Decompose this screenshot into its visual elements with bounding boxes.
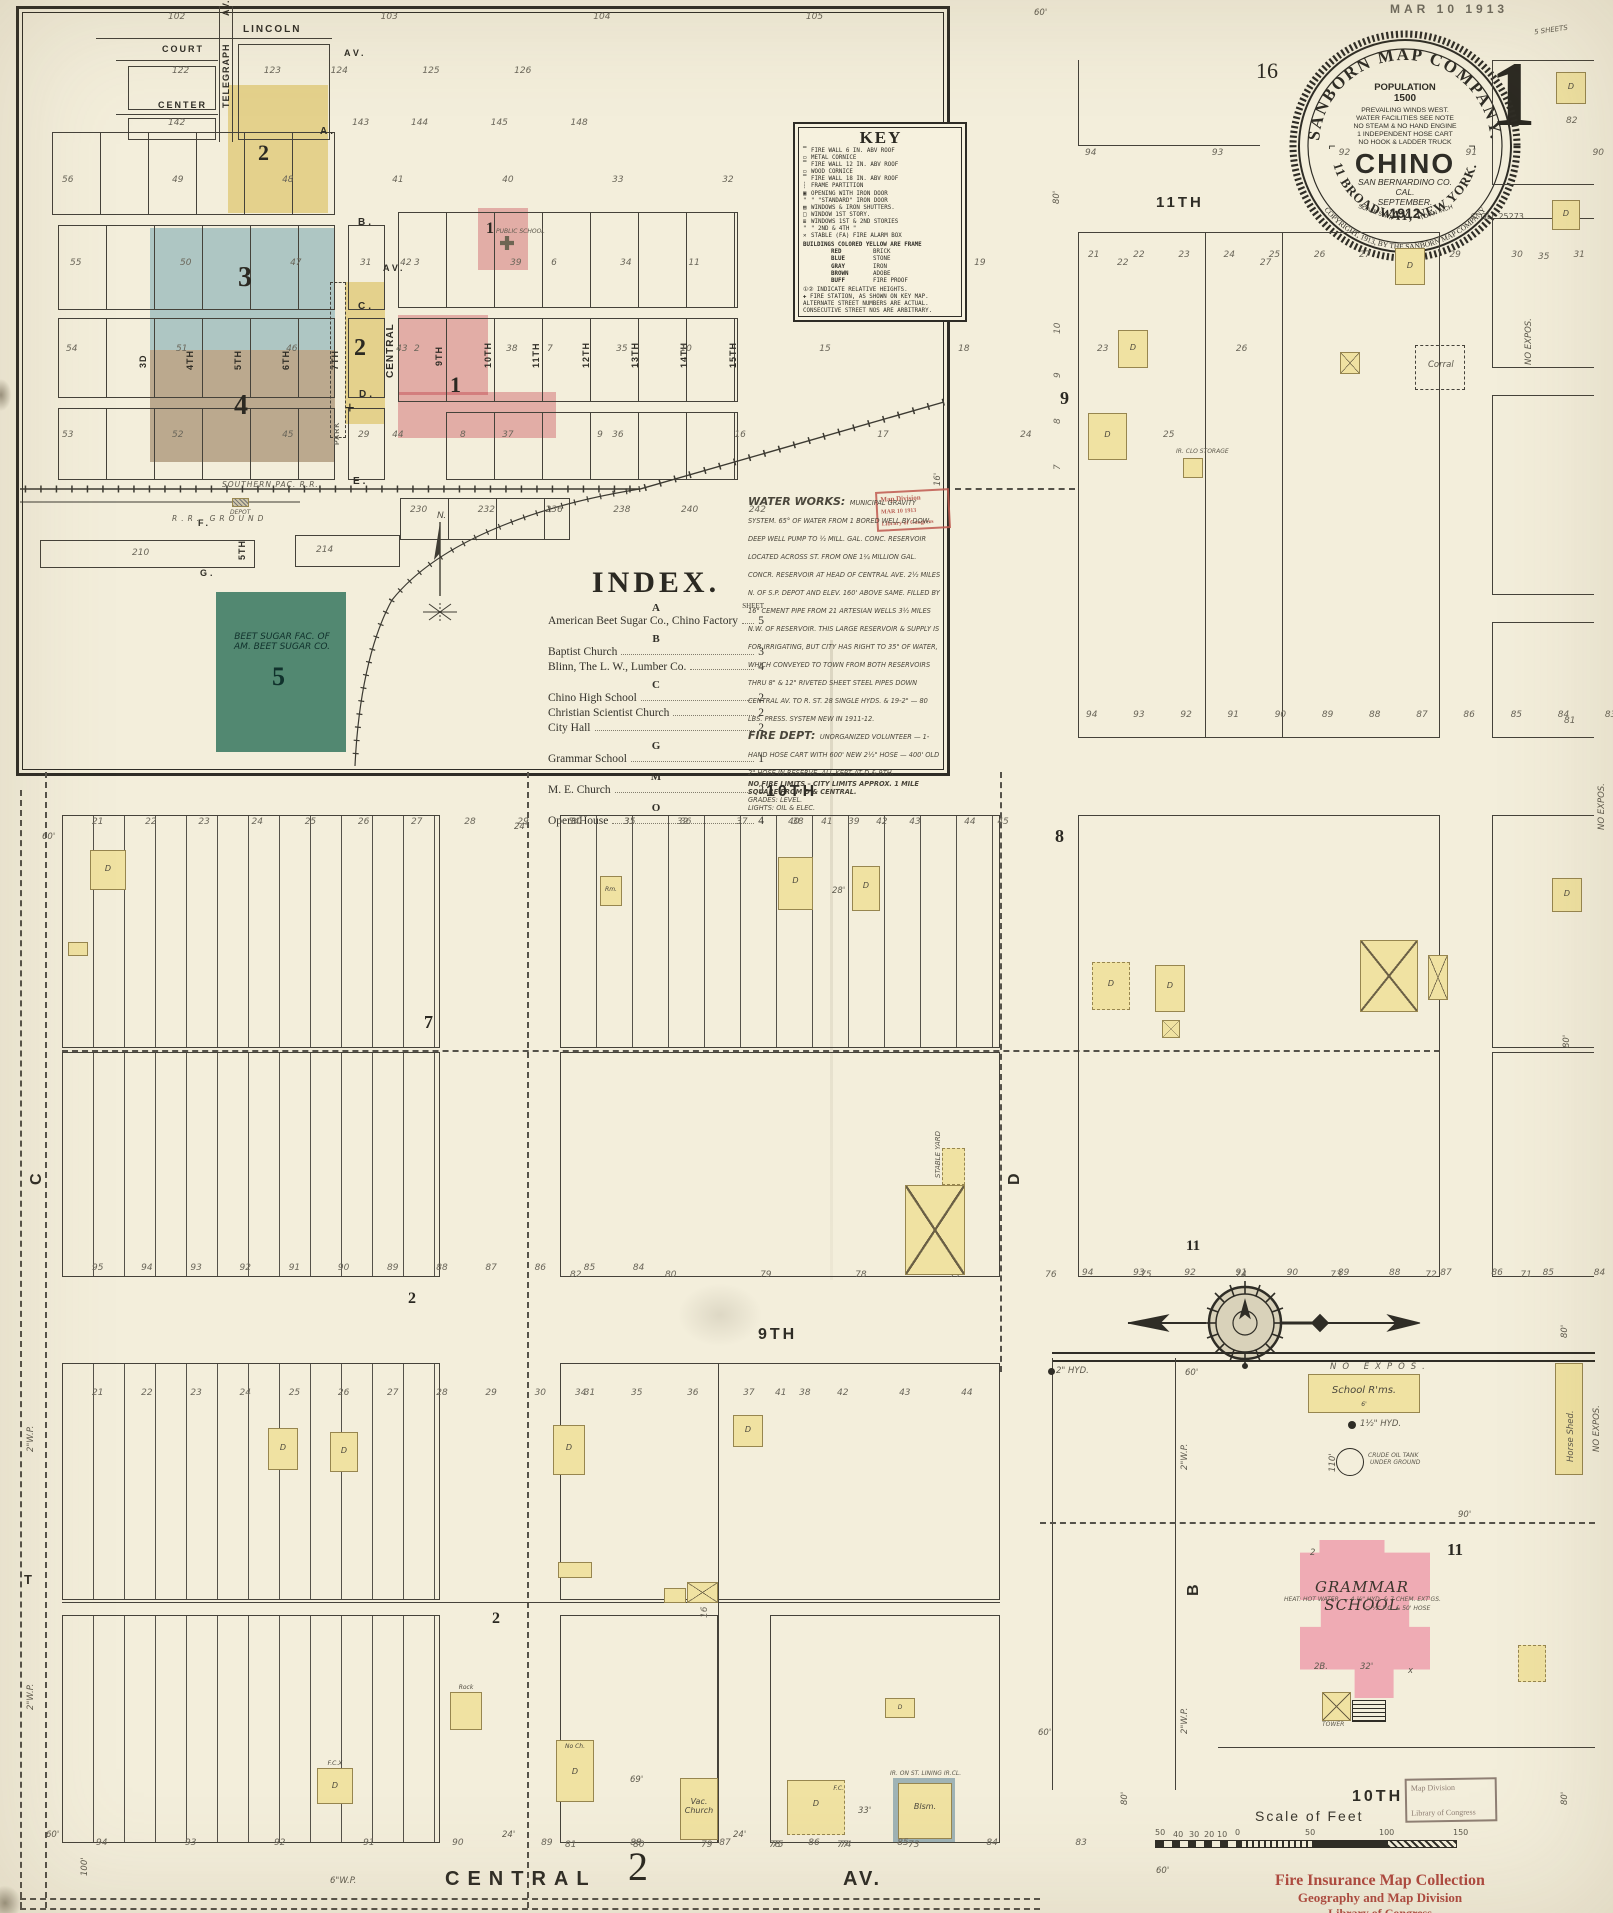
index-letter: G bbox=[548, 740, 764, 752]
lot-number: 81 bbox=[1564, 716, 1575, 726]
key-color-note: BUILDINGS COLORED YELLOW ARE FRAME bbox=[803, 242, 959, 249]
ft16-label: 16' bbox=[933, 473, 943, 486]
ft60-label: 60' bbox=[1185, 1368, 1198, 1378]
grammar-school-hose: ○ ½" P.O. & 50' HOSE bbox=[1365, 1605, 1430, 1612]
key-footnote: ALTERNATE STREET NUMBERS ARE ACTUAL. bbox=[803, 301, 959, 308]
school-rooms-building: School R'ms. 6' bbox=[1308, 1374, 1420, 1413]
lot-row: 122 123 124 125 126 bbox=[172, 66, 531, 76]
stamp-line: Map Division bbox=[1411, 1782, 1491, 1792]
unopened-street bbox=[955, 488, 1075, 490]
key-item: ▔FIRE WALL 12 IN. ABV ROOF bbox=[803, 162, 959, 169]
dwelling: D bbox=[733, 1415, 763, 1447]
index-entry: Baptist Church3 bbox=[548, 645, 764, 660]
lot-number: 8 bbox=[1053, 418, 1063, 424]
outbuilding bbox=[1428, 955, 1448, 1000]
block-divider bbox=[718, 1363, 719, 1843]
key-footnote: CONSECUTIVE STREET NOS ARE ARBITRARY. bbox=[803, 308, 959, 315]
key-item: "" "STANDARD" IRON DOOR bbox=[803, 198, 959, 205]
key-item: ┆FRAME PARTITION bbox=[803, 183, 959, 190]
index-entry: American Beet Sugar Co., Chino Factory5 bbox=[548, 614, 764, 629]
x-mark: x bbox=[1408, 1666, 1413, 1676]
c-street-line bbox=[45, 772, 47, 1908]
lot-row: 56 49 48 41 40 33 32 bbox=[62, 175, 734, 185]
basement-building: Blsm. bbox=[893, 1778, 955, 1842]
crude-oil-tank-circle bbox=[1336, 1448, 1364, 1476]
city-block bbox=[1078, 815, 1440, 1277]
sheet1-number: 1 bbox=[450, 372, 461, 398]
lights-note: LIGHTS: OIL & ELEC. bbox=[748, 804, 944, 812]
ft32-label: 32' bbox=[1360, 1662, 1373, 1672]
ir-lining-label: IR. ON ST. LINING IR.CL. bbox=[890, 1770, 961, 1777]
ft80-label: 80' bbox=[1562, 1035, 1572, 1048]
stable-yard-label: STABLE YARD bbox=[934, 1131, 942, 1178]
no-expos-label: NO EXPOS. bbox=[1592, 1405, 1602, 1452]
key-color-row: BUFFFIRE PROOF bbox=[803, 278, 959, 285]
street-e: E. bbox=[353, 476, 368, 487]
street-t: T bbox=[24, 1572, 35, 1587]
street-g: G. bbox=[200, 568, 216, 578]
scale-of-feet: Scale of Feet 50 40 30 20 10 0 50 100 15… bbox=[1155, 1808, 1465, 1854]
ft24-label: 24' bbox=[502, 1830, 515, 1840]
street-b: B. bbox=[358, 217, 374, 228]
lot-row: 94 93 92 91 90 89 88 87 86 85 84 83 bbox=[1082, 1268, 1613, 1278]
outbuilding bbox=[687, 1582, 718, 1603]
lot-row: 29 bbox=[358, 430, 369, 440]
lot-row: 75 74 73 bbox=[772, 1840, 920, 1850]
ft69-label: 69' bbox=[630, 1775, 643, 1785]
north-label: N. bbox=[437, 510, 446, 520]
lot-row: 142 143 144 145 148 bbox=[168, 118, 588, 128]
ft80-label: 80' bbox=[1560, 1325, 1570, 1338]
index-title: INDEX. bbox=[548, 566, 764, 600]
ft60-label: 60' bbox=[1034, 8, 1047, 18]
outbuilding bbox=[664, 1588, 686, 1603]
lot-number: 10 bbox=[1053, 323, 1063, 334]
key-legend-box: KEY ▔FIRE WALL 6 IN. ABV ROOF ▭METAL COR… bbox=[793, 122, 967, 322]
dwelling: D bbox=[1552, 878, 1582, 912]
key-item: "" 2ND & 4TH " bbox=[803, 226, 959, 233]
page-ref-16: 16 bbox=[1256, 58, 1278, 84]
scale-bar-segment bbox=[1387, 1840, 1457, 1848]
key-item: □WINDOW 1ST STORY. bbox=[803, 212, 959, 219]
hyd15-label: 1½" HYD. bbox=[1360, 1419, 1401, 1429]
seal-population-label: POPULATION bbox=[1374, 82, 1436, 93]
dwelling: D bbox=[330, 1432, 358, 1472]
sanborn-seal: SANBORN MAP COMPANY. 11 BROADWAY, NEW YO… bbox=[1287, 28, 1523, 264]
central-av-centerline bbox=[20, 1898, 1040, 1900]
lot-number: 9 bbox=[1053, 372, 1063, 378]
index-entry: Blinn, The L. W., Lumber Co.4 bbox=[548, 660, 764, 675]
dwelling: D bbox=[852, 866, 880, 911]
index-letter: O bbox=[548, 802, 764, 814]
index-letter: B bbox=[548, 633, 764, 645]
dwelling: D bbox=[268, 1428, 298, 1470]
lot-number: 210 bbox=[132, 548, 149, 558]
city-block bbox=[62, 1615, 440, 1843]
outbuilding bbox=[1518, 1645, 1546, 1682]
street-c-main: C bbox=[28, 1172, 46, 1185]
margin-block bbox=[1492, 395, 1594, 595]
ft28-label: 28' bbox=[832, 886, 845, 896]
block-9-divider bbox=[1282, 232, 1283, 738]
lot-row: 40 41 42 43 44 45 bbox=[788, 817, 1009, 827]
city-block bbox=[62, 1052, 440, 1277]
street-central-av-main: AV. bbox=[843, 1868, 882, 1891]
dwelling: D bbox=[1556, 72, 1586, 104]
margin-block bbox=[1492, 622, 1594, 738]
ft60-label: 60' bbox=[42, 832, 55, 842]
ft110-label: 110' bbox=[1328, 1453, 1338, 1472]
key-item: ✕STABLE (FA) FIRE ALARM BOX bbox=[803, 233, 959, 240]
railroad-label: SOUTHERN PAC. R.R. bbox=[222, 480, 319, 489]
city-block bbox=[560, 815, 1000, 1048]
corral-label: Corral bbox=[1428, 360, 1454, 370]
unopened-street bbox=[527, 772, 529, 1908]
ft80-label: 80' bbox=[1120, 1792, 1130, 1805]
block-8-number: 8 bbox=[1055, 826, 1064, 847]
dwelling: D bbox=[885, 1698, 915, 1718]
scale-bar-segment bbox=[1155, 1840, 1239, 1848]
seal-state: CAL. bbox=[1396, 187, 1415, 197]
sheet5-number: 5 bbox=[272, 662, 285, 692]
block-edge bbox=[1052, 1358, 1053, 1790]
no-expos-label: NO EXPOS. bbox=[1330, 1362, 1431, 1372]
lot-number: 82 bbox=[1566, 116, 1577, 126]
collection-line: Fire Insurance Map Collection bbox=[1230, 1872, 1530, 1890]
key-item: ⊞WINDOWS 1ST & 2ND STORIES bbox=[803, 219, 959, 226]
ft24-label: 24' bbox=[733, 1830, 746, 1840]
beet-sugar-label: BEET SUGAR FAC. OF AM. BEET SUGAR CO. bbox=[222, 632, 342, 652]
street-central-main: CENTRAL bbox=[445, 1868, 597, 1891]
sheet1-number: 1 bbox=[486, 220, 494, 238]
block-9-outline bbox=[1078, 232, 1440, 738]
unopened-street bbox=[1040, 1522, 1595, 1524]
sheet-edge-dashes bbox=[20, 790, 22, 1908]
margin-block bbox=[1492, 218, 1594, 368]
key-color-row: GRAYIRON bbox=[803, 264, 959, 271]
sheet3-number: 3 bbox=[238, 262, 252, 294]
received-date-stamp: MAR 10 1913 bbox=[1390, 2, 1508, 16]
ft60-label: 60' bbox=[1038, 1728, 1051, 1738]
ft60-label: 60' bbox=[46, 1830, 59, 1840]
scale-bar-segment bbox=[1313, 1840, 1387, 1848]
key-item: ▔FIRE WALL 6 IN. ABV ROOF bbox=[803, 148, 959, 155]
wp2-label: 2"W.P. bbox=[26, 1684, 36, 1710]
index-letter: M bbox=[548, 771, 764, 783]
street-line bbox=[1218, 1747, 1595, 1748]
block-9-number: 9 bbox=[1060, 388, 1069, 409]
lot-row: 41 42 43 44 bbox=[775, 1388, 973, 1398]
scale-tick: 0 bbox=[1235, 1828, 1240, 1837]
d-street-line bbox=[1000, 772, 1002, 1372]
ft100-label: 100' bbox=[80, 1857, 90, 1876]
street-5th-south: 5TH bbox=[237, 540, 247, 560]
scale-tick: 10 bbox=[1217, 1830, 1227, 1839]
street-center: CENTER bbox=[158, 100, 207, 110]
dwelling: D bbox=[1395, 248, 1425, 285]
outbuilding bbox=[1162, 1020, 1180, 1038]
lot-row: 95 94 93 92 91 90 89 88 87 86 85 84 bbox=[92, 1263, 644, 1273]
ft60-label: 60' bbox=[1156, 1866, 1169, 1876]
street-d: D. bbox=[359, 389, 375, 400]
wp2-label: 2"W.P. bbox=[26, 1426, 36, 1452]
dwelling: D bbox=[553, 1425, 585, 1475]
school-steps bbox=[1352, 1700, 1386, 1722]
block-edge bbox=[1078, 60, 1079, 146]
key-color-row: BLUESTONE bbox=[803, 256, 959, 263]
wp2-label: 2"W.P. bbox=[1180, 1444, 1190, 1470]
sheet-ref-2: 2 bbox=[408, 1290, 416, 1308]
scan-smudge bbox=[660, 1270, 780, 1360]
school-tower bbox=[1322, 1692, 1351, 1721]
street-10th-main: 10TH bbox=[766, 783, 817, 801]
key-title: KEY bbox=[803, 128, 959, 148]
sheet-edge-dashes bbox=[20, 1908, 1040, 1910]
dwelling: D bbox=[90, 850, 126, 890]
fire-station-cross: + bbox=[345, 398, 355, 418]
street-10th-bottom: 10TH bbox=[1352, 1788, 1403, 1806]
sheet4-number: 4 bbox=[234, 390, 248, 422]
key-item: ▣OPENING WITH IRON DOOR bbox=[803, 191, 959, 198]
beet-sugar-line1: BEET SUGAR FAC. OF bbox=[234, 632, 330, 642]
seal-fact: 1 INDEPENDENT HOSE CART bbox=[1357, 131, 1453, 138]
index-entry: Grammar School1 bbox=[548, 752, 764, 767]
dwelling: D bbox=[778, 857, 813, 910]
ft33-label: 33' bbox=[858, 1806, 871, 1816]
scale-tick: 30 bbox=[1189, 1830, 1199, 1839]
church-dwelling: No Ch. D bbox=[556, 1740, 594, 1802]
notes-section: WATER WORKS: MUNICIPAL GRAVITY SYSTEM. 6… bbox=[748, 492, 944, 812]
index-letter: C bbox=[548, 679, 764, 691]
lot-row: 8 9 16 17 24 25 bbox=[460, 430, 1174, 440]
sheets-note: 5 SHEETS bbox=[1534, 24, 1569, 37]
scale-tick: 40 bbox=[1173, 1830, 1183, 1839]
lot-2-label: 2 bbox=[1310, 1548, 1315, 1558]
crude-oil-label1: CRUDE OIL TANK bbox=[1368, 1452, 1418, 1459]
street-lincoln-av: AV. bbox=[344, 48, 367, 58]
street-c: C. bbox=[358, 301, 374, 312]
street-11th-main: 11TH bbox=[1156, 194, 1204, 211]
hyd2-label: 2" HYD. bbox=[1056, 1366, 1089, 1376]
key-item: ▤WINDOWS & IRON SHUTTERS. bbox=[803, 205, 959, 212]
street-9th-main: 9TH bbox=[758, 1326, 797, 1344]
sheet-ref-2: 2 bbox=[492, 1610, 500, 1628]
stable-wing bbox=[942, 1148, 965, 1185]
barn bbox=[1360, 940, 1418, 1012]
street-lincoln: LINCOLN bbox=[243, 24, 301, 35]
water-works-text: MUNICIPAL GRAVITY SYSTEM. 65° OF WATER F… bbox=[748, 499, 940, 723]
water-works-title: WATER WORKS: bbox=[748, 495, 845, 508]
seal-fact: NO STEAM & NO HAND ENGINE bbox=[1353, 123, 1457, 130]
index-entry: M. E. Church2 bbox=[548, 783, 764, 798]
key-footnote: ✚ FIRE STATION, AS SHOWN ON KEY MAP. bbox=[803, 294, 959, 301]
outbuilding bbox=[68, 942, 88, 956]
lot-2b-label: 2B. bbox=[1314, 1662, 1328, 1672]
crude-oil-label2: UNDER GROUND bbox=[1370, 1459, 1420, 1466]
lot-row: 21 22 23 24 25 26 27 28 29 30 31 bbox=[92, 1388, 595, 1398]
lot-row: 31 bbox=[360, 258, 371, 268]
seal-county: SAN BERNARDINO CO. bbox=[1358, 177, 1452, 187]
vacant-church-building: Vac. Church bbox=[680, 1778, 718, 1840]
seal-fact: PREVAILING WINDS WEST. bbox=[1361, 107, 1449, 114]
no-expos-label: NO EXPOS. bbox=[1524, 318, 1534, 365]
rock-building: Rock bbox=[450, 1692, 482, 1730]
block-9-divider bbox=[1205, 232, 1206, 738]
scale-tick: 100 bbox=[1379, 1828, 1394, 1837]
stable-building bbox=[905, 1185, 965, 1275]
key-footnote: ①② INDICATE RELATIVE HEIGHTS. bbox=[803, 287, 959, 294]
street-line bbox=[62, 1602, 1000, 1603]
margin-block bbox=[1492, 815, 1594, 1048]
sheet2-number: 2 bbox=[354, 335, 366, 362]
dwelling: D bbox=[1155, 965, 1185, 1012]
scale-bar-segment bbox=[1239, 1840, 1313, 1848]
seal-population-value: 1500 bbox=[1394, 93, 1417, 104]
sheet-ref-11: 11 bbox=[1186, 1238, 1200, 1255]
margin-block bbox=[1492, 1052, 1594, 1277]
seal-fact: WATER FACILITIES SEE NOTE bbox=[1356, 115, 1454, 122]
room-building: Rm. bbox=[600, 876, 622, 906]
street-d-main: D bbox=[1006, 1172, 1024, 1185]
index-entry: Christian Scientist Church2 bbox=[548, 706, 764, 721]
lot-number: 214 bbox=[316, 545, 333, 555]
wp2-label: 2"W.P. bbox=[1180, 1708, 1190, 1734]
horse-shed-label: Horse Shed. bbox=[1566, 1410, 1576, 1462]
ft80-label: 80' bbox=[1052, 191, 1062, 204]
sheet-ref-2-central: 2 bbox=[628, 1843, 648, 1890]
seal-fact: NO HOOK & LADDER TRUCK bbox=[1358, 139, 1452, 146]
dwelling: D bbox=[1088, 413, 1127, 460]
index-section: INDEX. SHEET A American Beet Sugar Co., … bbox=[548, 566, 764, 829]
rr-ground-label: R.R. GROUND bbox=[172, 514, 267, 523]
outbuilding bbox=[1340, 352, 1360, 374]
hydrant-dot bbox=[1348, 1421, 1356, 1429]
block-edge bbox=[1175, 1358, 1176, 1790]
outbuilding-cluster bbox=[558, 1562, 592, 1578]
lot-row: 102 103 104 105 bbox=[168, 12, 823, 22]
collection-line: Geography and Map Division bbox=[1230, 1890, 1530, 1906]
dwelling: DF.C. bbox=[787, 1780, 845, 1835]
sheet2-number: 2 bbox=[258, 140, 269, 166]
city-block bbox=[560, 1363, 1000, 1600]
street-3d: 3D bbox=[138, 354, 148, 368]
depot-building bbox=[232, 498, 249, 507]
index-letter: A bbox=[548, 602, 764, 614]
sanborn-map-sheet: LINCOLN AV. AV. TELEGRAPH COURT CENTER A… bbox=[0, 0, 1613, 1913]
dwelling: D bbox=[1118, 330, 1148, 368]
lot-number-16: 16 bbox=[700, 1607, 710, 1618]
scale-title: Scale of Feet bbox=[1255, 1808, 1364, 1824]
beet-sugar-line2: AM. BEET SUGAR CO. bbox=[234, 642, 330, 652]
wp6-label: 6"W.P. bbox=[330, 1876, 356, 1886]
seal-year: 1912 bbox=[1389, 205, 1420, 221]
scale-tick: 20 bbox=[1204, 1830, 1214, 1839]
loc-collection-stamp: Fire Insurance Map Collection Geography … bbox=[1230, 1872, 1530, 1913]
dwelling: D bbox=[1552, 200, 1580, 230]
city-block bbox=[62, 1363, 440, 1600]
ft80-label: 80' bbox=[1560, 1792, 1570, 1805]
school-block-top-edge bbox=[1052, 1352, 1595, 1362]
collection-line: Library of Congress bbox=[1230, 1906, 1530, 1913]
street-b-main: B bbox=[1185, 1583, 1203, 1596]
index-entry: City Hall2 bbox=[548, 721, 764, 736]
dwelling: D bbox=[1092, 962, 1130, 1010]
fire-dept-title: FIRE DEPT: bbox=[748, 729, 815, 742]
grammar-school-note: HEAT: HOT WATER. — 4-½" HYD. & 7 CHEM. E… bbox=[1284, 1596, 1441, 1603]
dwelling-fcx: F.C.XD bbox=[317, 1768, 353, 1804]
scale-tick: 150 bbox=[1453, 1828, 1468, 1837]
sheet-ref-11: 11 bbox=[1447, 1540, 1463, 1560]
block-edge bbox=[1078, 145, 1260, 146]
ft90-label: 90' bbox=[1458, 1510, 1471, 1520]
key-color-row: REDBRICK bbox=[803, 249, 959, 256]
index-entry: Chino High School2 bbox=[548, 691, 764, 706]
scale-tick: 50 bbox=[1305, 1828, 1315, 1837]
hydrant-dot bbox=[1048, 1368, 1055, 1375]
ir-clo-storage-building bbox=[1183, 458, 1203, 478]
lot-number: 7 bbox=[1053, 464, 1063, 470]
lot-number: 35 bbox=[1538, 252, 1549, 262]
north-arrow: N. bbox=[415, 508, 465, 628]
scale-tick: 50 bbox=[1155, 1828, 1165, 1837]
tower-label: TOWER bbox=[1322, 1721, 1344, 1728]
ir-clo-storage-label: IR. CLO STORAGE bbox=[1176, 448, 1229, 455]
block-7-number: 7 bbox=[424, 1012, 433, 1033]
no-expos-label: NO EXPOS. bbox=[1597, 783, 1607, 830]
key-color-row: BROWNADOBE bbox=[803, 271, 959, 278]
street-court: COURT bbox=[162, 44, 204, 54]
public-school-label: PUBLIC SCHOOL bbox=[496, 228, 545, 235]
